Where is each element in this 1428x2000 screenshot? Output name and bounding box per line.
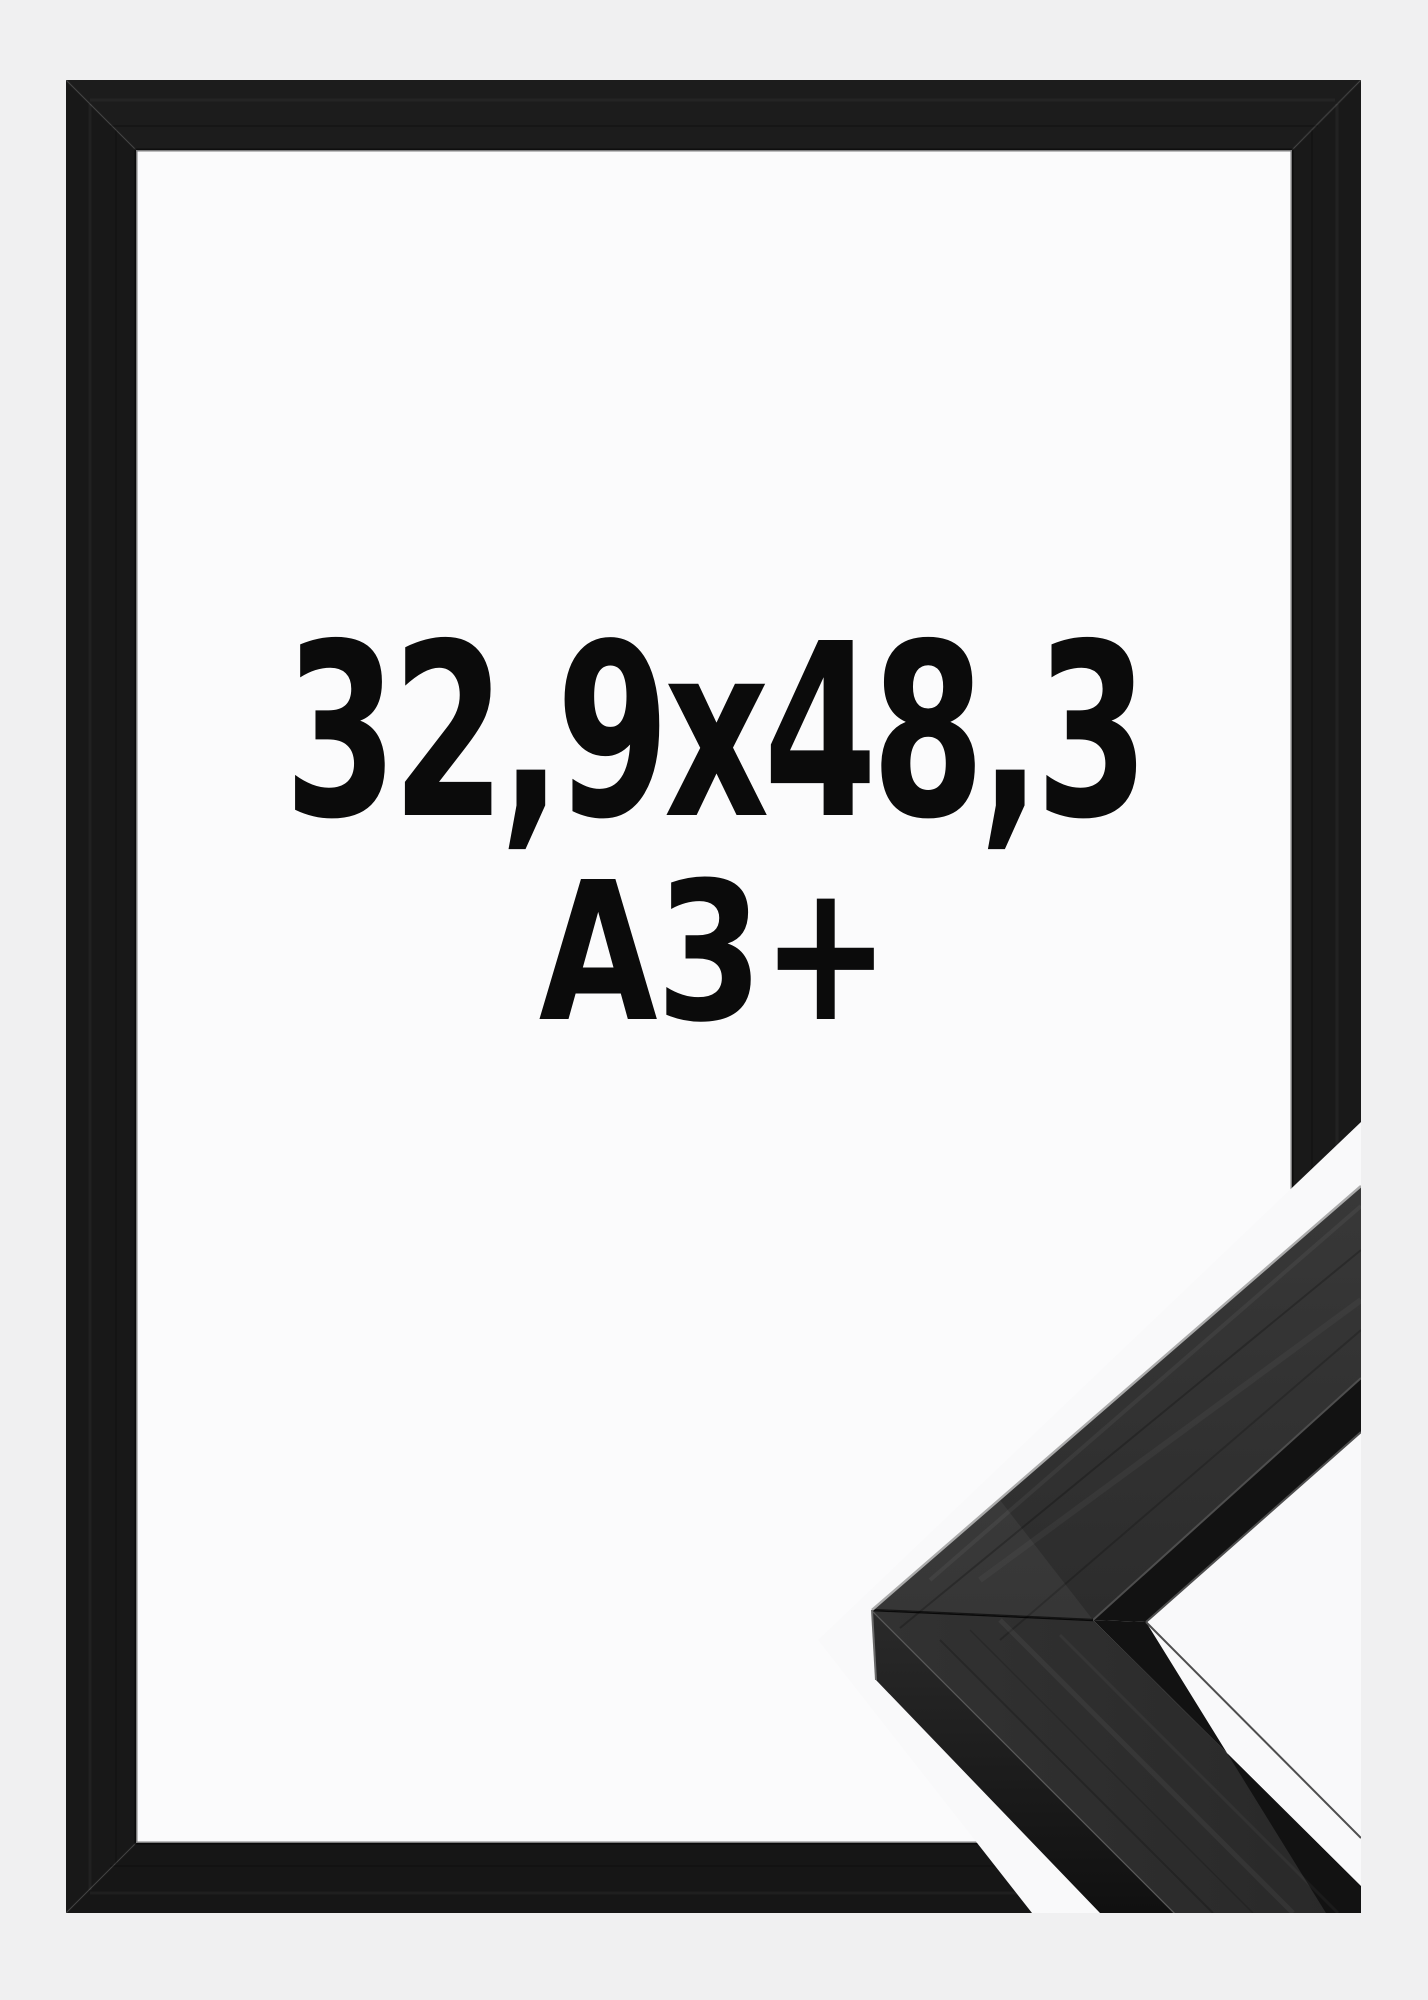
frame-band-left	[66, 80, 136, 1913]
frame-scene	[0, 0, 1428, 2000]
product-image: 32,9x48,3 A3+	[0, 0, 1428, 2000]
frame-band-top	[66, 80, 1361, 150]
